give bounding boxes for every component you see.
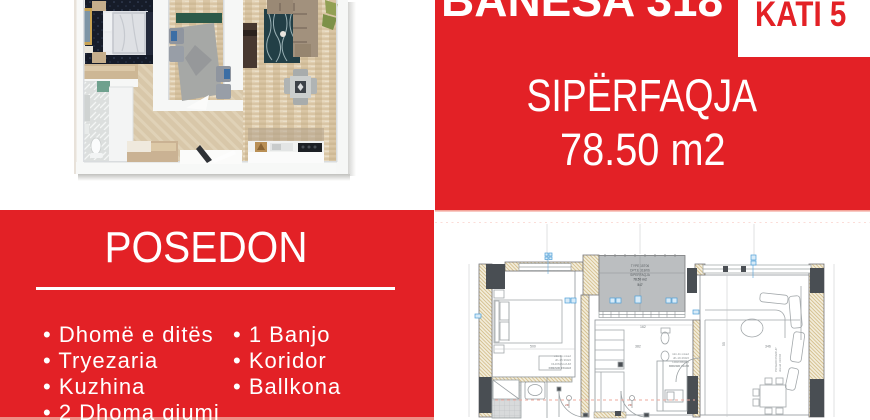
- svg-text:2Φ: 2Φ: [565, 403, 570, 407]
- svg-text:2Φ: 2Φ: [628, 403, 633, 407]
- svg-text:55: 55: [722, 342, 726, 346]
- svg-text:dresid 310/46: dresid 310/46: [778, 353, 782, 372]
- svg-text:382: 382: [635, 345, 641, 349]
- svg-text:162: 162: [640, 325, 646, 329]
- svg-text:DRESID 11/A6: DRESID 11/A6: [669, 364, 689, 368]
- svg-text:SIPERFAQJA: SIPERFAQJA: [630, 273, 651, 277]
- svg-text:346: 346: [765, 345, 771, 349]
- svg-text:500: 500: [530, 345, 536, 349]
- svg-text:DRESID 15/AH2: DRESID 15/AH2: [549, 366, 572, 370]
